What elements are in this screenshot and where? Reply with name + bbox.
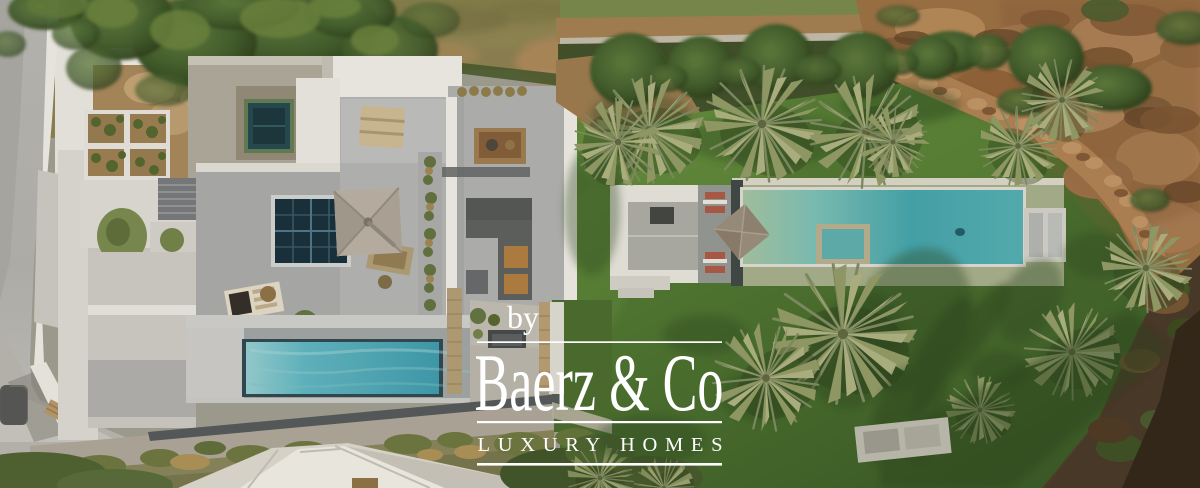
- svg-text:by: by: [507, 299, 539, 335]
- svg-text:Baerz & Co: Baerz & Co: [475, 337, 724, 428]
